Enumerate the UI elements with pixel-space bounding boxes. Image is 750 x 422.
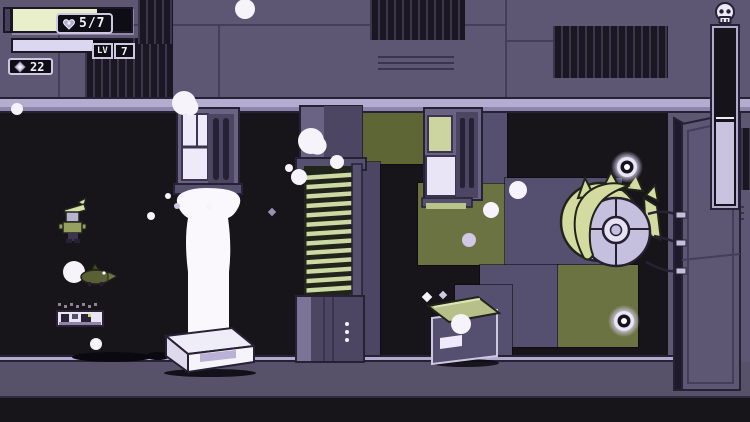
level-label-box: LV [92, 43, 113, 59]
bubble [174, 203, 180, 209]
player-character [59, 198, 86, 243]
foam-pillar-base [166, 328, 254, 372]
bubble [451, 314, 471, 334]
vent-pillar-base [296, 296, 364, 362]
bubble [285, 164, 293, 172]
foam-blob [172, 91, 198, 116]
foam-pillar [166, 188, 254, 372]
pipe [223, 118, 229, 180]
bubble [165, 193, 171, 199]
sparkle [439, 291, 447, 299]
eye-orb [611, 151, 643, 183]
terminal-dots [58, 303, 97, 308]
bubble [509, 181, 527, 199]
level-value-box: 7 [114, 43, 135, 59]
wall-head [561, 172, 661, 266]
danger-gauge-fill [716, 122, 734, 204]
pipe [469, 118, 474, 188]
bubble [462, 233, 476, 247]
foam-machine [174, 108, 242, 194]
danger-gauge [712, 26, 738, 208]
eye-orb [608, 305, 640, 337]
skull-icon [716, 3, 734, 23]
currency-counter: 22 [8, 58, 53, 75]
bubble [483, 202, 499, 218]
bubble [90, 338, 102, 350]
level-value: 7 [121, 46, 128, 57]
cable-pin [676, 212, 686, 218]
bubble [330, 155, 344, 169]
bubble [345, 330, 349, 334]
bubble-lizard-enemy [63, 261, 117, 286]
heart-icon [62, 18, 76, 30]
ceiling-machine [422, 108, 482, 209]
hair-spike [646, 185, 658, 201]
health-label-pill: 5/7 [56, 13, 113, 34]
bubble [345, 338, 349, 342]
hud: 5/7 LV 7 22 [0, 0, 250, 90]
bubble [147, 212, 155, 220]
player-head [66, 212, 79, 222]
level-label: LV [97, 47, 108, 56]
currency-value: 22 [30, 61, 44, 73]
game-viewport[interactable]: 5/7 LV 7 22 [0, 0, 750, 422]
bubble [206, 204, 212, 210]
cable-pin [676, 268, 686, 274]
bubble [345, 322, 349, 326]
pipe [460, 118, 465, 188]
health-text: 5/7 [79, 17, 105, 30]
bubble [11, 103, 23, 115]
danger-gauge-tick [716, 117, 734, 119]
floor-terminal [57, 303, 103, 326]
xp-bar-fill [13, 40, 93, 51]
sparkle [268, 208, 276, 216]
sparkle [422, 292, 433, 303]
pipe [213, 118, 219, 180]
gem-icon [14, 61, 26, 73]
player-body [63, 222, 82, 233]
cable-pin [676, 240, 686, 246]
